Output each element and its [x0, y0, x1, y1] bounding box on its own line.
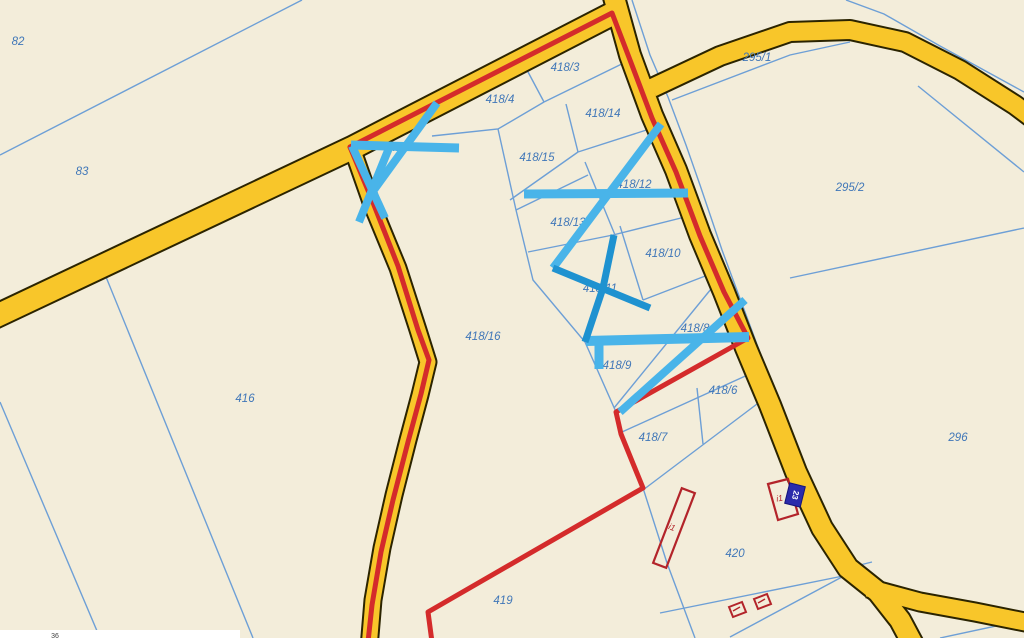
- parcel-label-418/16: 418/16: [465, 331, 501, 343]
- parcel-label-296: 296: [947, 432, 968, 444]
- parcel-label-418/15: 418/15: [519, 152, 555, 164]
- parcel-label-418/6: 418/6: [709, 385, 738, 397]
- parcel-label-418/7: 418/7: [639, 432, 668, 444]
- parcel-label-418/10: 418/10: [645, 248, 681, 260]
- parcel-label-295/2: 295/2: [835, 182, 865, 194]
- parcel-label-295/1: 295/1: [742, 52, 772, 64]
- bottom-overlay-strip: [0, 630, 240, 638]
- parcel-label-418/14: 418/14: [585, 108, 620, 120]
- parcel-label-418/3: 418/3: [551, 62, 580, 74]
- bottom-partial-label: 36: [51, 633, 59, 638]
- parcel-label-418/9: 418/9: [603, 360, 632, 372]
- cadastral-map[interactable]: 8283416418/3418/4418/5418/14418/15418/12…: [0, 0, 1024, 638]
- hatch-stroke-light: [586, 337, 749, 341]
- parcel-label-416: 416: [235, 393, 255, 405]
- parcel-label-83: 83: [76, 166, 89, 178]
- parcel-label-418/4: 418/4: [486, 94, 515, 106]
- cadastral-map-canvas[interactable]: 8283416418/3418/4418/5418/14418/15418/12…: [0, 0, 1024, 638]
- parcel-label-419: 419: [493, 595, 513, 607]
- parcel-label-420: 420: [725, 548, 745, 560]
- parcel-label-82: 82: [12, 36, 25, 48]
